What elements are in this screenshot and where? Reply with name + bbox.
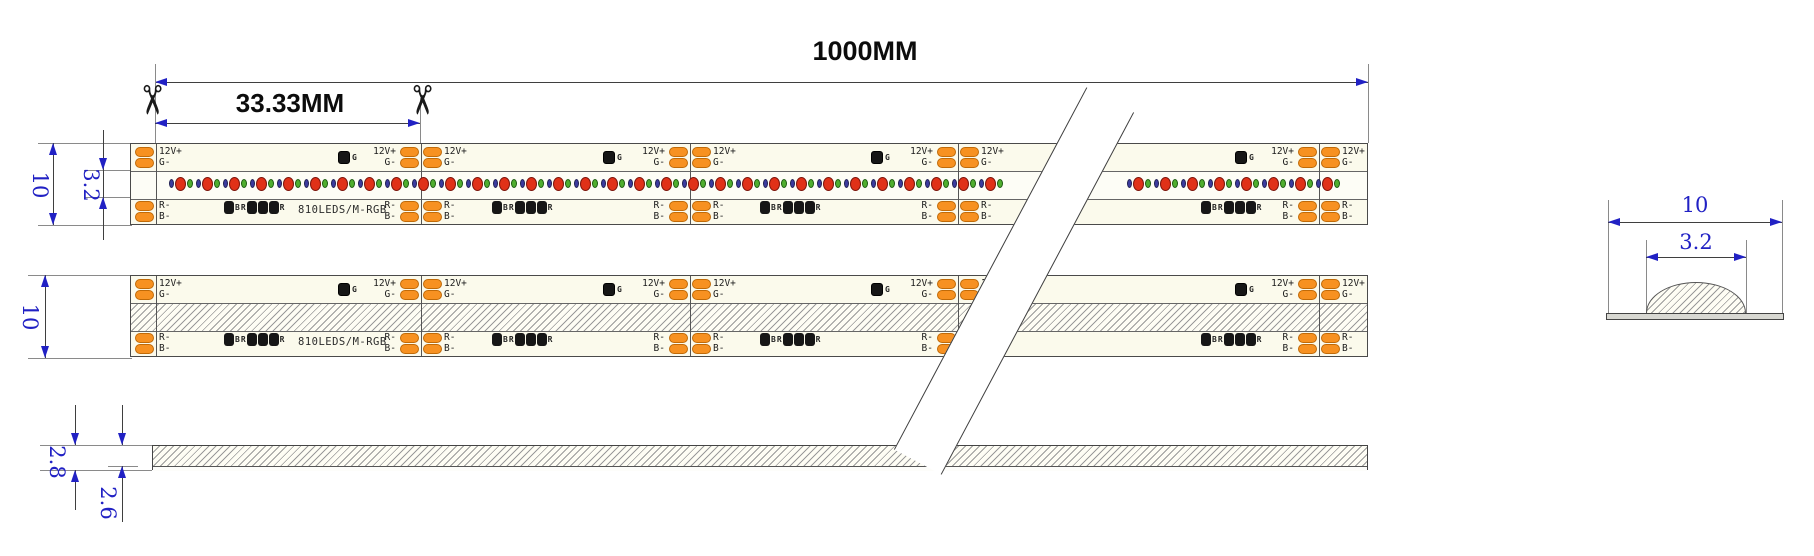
overall-length-label: 1000MM <box>790 36 940 67</box>
led-blue-die <box>817 179 822 188</box>
solder-pad <box>669 279 688 289</box>
led-red-die <box>553 177 564 191</box>
profile-height-label: 2.8 <box>45 440 69 484</box>
solder-pad <box>692 333 711 343</box>
solder-pad <box>960 158 979 168</box>
pad-label: 12V+ <box>159 146 189 157</box>
resistor-chip <box>537 333 547 346</box>
pcb-layer-profile <box>153 467 1367 471</box>
led-green-die <box>1199 179 1205 188</box>
solder-pad <box>400 279 419 289</box>
resistor-label: B <box>503 201 508 214</box>
pad-label: R- <box>159 332 189 343</box>
pad-label: 12V+ <box>713 278 741 289</box>
resistor-chip <box>794 333 804 346</box>
led-red-die <box>796 177 807 191</box>
led-chip-cluster <box>1127 176 1151 192</box>
spec-label: 810LEDS/M-RGB <box>298 204 387 216</box>
solder-pad <box>423 344 442 354</box>
smd-component <box>603 283 615 296</box>
pad-label: R- <box>981 200 1009 211</box>
side-profile-view <box>152 445 1368 470</box>
resistor-chip <box>760 201 770 214</box>
led-blue-die <box>412 179 417 188</box>
pad-label: G- <box>713 289 741 300</box>
led-chip-cluster <box>979 176 1003 192</box>
zone-divider-line <box>131 303 1367 304</box>
pad-label: G- <box>1252 157 1294 168</box>
led-blue-die <box>979 179 984 188</box>
led-blue-die <box>655 179 660 188</box>
led-blue-die <box>331 179 336 188</box>
zone-divider-line <box>131 171 1367 172</box>
solder-pad <box>669 147 688 157</box>
solder-pad <box>692 201 711 211</box>
led-red-die <box>472 177 483 191</box>
resistor-cluster: BRR <box>224 333 284 346</box>
resistor-cluster: BRR <box>760 201 820 214</box>
resistor-chip <box>515 333 525 346</box>
led-red-die <box>850 177 861 191</box>
led-blue-die <box>1208 179 1213 188</box>
resistor-chip <box>783 201 793 214</box>
solder-pad <box>135 279 154 289</box>
led-chip-cluster <box>277 176 301 192</box>
resistor-chip <box>224 201 234 214</box>
led-chip-cluster <box>385 176 409 192</box>
component-label: G <box>1249 285 1254 294</box>
led-green-die <box>565 179 571 188</box>
solder-pad <box>423 201 442 211</box>
led-green-die <box>646 179 652 188</box>
resistor-label: R <box>241 333 246 346</box>
led-red-die <box>337 177 348 191</box>
led-red-die <box>1322 177 1333 191</box>
led-red-die <box>607 177 618 191</box>
solder-pad <box>135 147 154 157</box>
led-red-die <box>1214 177 1225 191</box>
resistor-chip <box>805 333 815 346</box>
cut-unit-label: 33.33MM <box>205 88 375 119</box>
pad-label: G- <box>159 289 189 300</box>
led-blue-die <box>520 179 525 188</box>
led-chip-cluster <box>223 176 247 192</box>
pad-label: 12V+ <box>354 278 396 289</box>
resistor-label: R <box>548 201 553 214</box>
resistor-chip <box>492 333 502 346</box>
led-blue-die <box>763 179 768 188</box>
dimension-arrow <box>49 143 57 155</box>
resistor-chip <box>1224 201 1234 214</box>
resistor-chip <box>515 201 525 214</box>
pad-label: R- <box>623 200 665 211</box>
led-green-die <box>1280 179 1286 188</box>
led-red-die <box>283 177 294 191</box>
dimension-line <box>155 82 1368 83</box>
led-green-die <box>376 179 382 188</box>
led-chip-cluster <box>412 176 436 192</box>
resistor-chip <box>794 201 804 214</box>
led-red-die <box>391 177 402 191</box>
led-red-die <box>1295 177 1306 191</box>
smd-component <box>1235 283 1247 296</box>
led-red-die <box>445 177 456 191</box>
led-red-die <box>418 177 429 191</box>
resistor-label: B <box>1212 201 1217 214</box>
solder-pad <box>423 147 442 157</box>
pad-label: R- <box>623 332 665 343</box>
resistor-chip <box>760 333 770 346</box>
led-strip-covered-view: 12V+G-R-B-12V+G-R-B-12V+G-R-B-12V+G-R-B-… <box>130 275 1368 357</box>
solder-pad <box>692 158 711 168</box>
solder-pad <box>692 147 711 157</box>
led-red-die <box>958 177 969 191</box>
led-blue-die <box>1262 179 1267 188</box>
solder-pad <box>1298 344 1317 354</box>
smd-component <box>871 283 883 296</box>
cut-line <box>1319 276 1320 356</box>
led-green-die <box>322 179 328 188</box>
dimension-arrow <box>1770 218 1782 226</box>
pad-label: G- <box>159 157 189 168</box>
led-blue-die <box>250 179 255 188</box>
led-blue-die <box>1181 179 1186 188</box>
solder-pad <box>1321 290 1340 300</box>
led-green-die <box>349 179 355 188</box>
resistor-label: R <box>509 333 514 346</box>
led-blue-die <box>790 179 795 188</box>
led-red-die <box>499 177 510 191</box>
component-label: G <box>1249 153 1254 162</box>
dimension-arrow <box>1356 78 1368 86</box>
zone-divider-line <box>131 331 1367 332</box>
resistor-chip <box>537 201 547 214</box>
led-chip-cluster <box>709 176 733 192</box>
led-chip-cluster <box>466 176 490 192</box>
led-blue-die <box>304 179 309 188</box>
pad-label: G- <box>981 157 1009 168</box>
led-chip-cluster <box>844 176 868 192</box>
dimension-arrow <box>118 433 126 445</box>
led-green-die <box>214 179 220 188</box>
pad-label: R- <box>1342 200 1368 211</box>
led-red-die <box>229 177 240 191</box>
cut-line <box>421 276 422 356</box>
solder-pad <box>669 344 688 354</box>
led-chip-cluster <box>439 176 463 192</box>
led-chip-cluster <box>925 176 949 192</box>
resistor-label: B <box>503 333 508 346</box>
pad-label: B- <box>981 211 1009 222</box>
led-red-die <box>985 177 996 191</box>
resistor-label: R <box>816 201 821 214</box>
pad-label: G- <box>354 157 396 168</box>
solder-pad <box>1298 279 1317 289</box>
smd-component <box>338 283 350 296</box>
led-green-die <box>673 179 679 188</box>
extension-line <box>1368 64 1369 143</box>
pad-label: B- <box>1342 211 1368 222</box>
resistor-label: R <box>241 201 246 214</box>
led-chip-cluster <box>196 176 220 192</box>
solder-pad <box>669 212 688 222</box>
resistor-chip <box>526 201 536 214</box>
resistor-label: R <box>280 333 285 346</box>
resistor-label: R <box>1257 201 1262 214</box>
led-green-die <box>727 179 733 188</box>
pad-label: 12V+ <box>891 278 933 289</box>
led-blue-die <box>844 179 849 188</box>
led-blue-die <box>574 179 579 188</box>
solder-pad <box>423 290 442 300</box>
resistor-label: R <box>1218 333 1223 346</box>
led-chip-cluster <box>304 176 328 192</box>
component-label: G <box>885 153 890 162</box>
solder-pad <box>669 290 688 300</box>
extension-line <box>38 225 132 226</box>
pad-label: R- <box>444 200 472 211</box>
component-label: G <box>352 285 357 294</box>
led-green-die <box>268 179 274 188</box>
pad-label: G- <box>1342 157 1368 168</box>
pad-label: B- <box>159 343 189 354</box>
solder-pad <box>400 344 419 354</box>
solder-pad <box>1298 158 1317 168</box>
led-red-die <box>256 177 267 191</box>
pad-label: G- <box>623 289 665 300</box>
pad-label: B- <box>1342 343 1368 354</box>
component-label: G <box>617 285 622 294</box>
strip1-width-label: 10 <box>28 163 52 207</box>
resistor-label: R <box>1218 201 1223 214</box>
led-strip-technical-drawing: 1000MM 33.33MM ✂ ✂ 10 3.2 <box>0 0 1814 556</box>
pad-label: R- <box>159 200 189 211</box>
pad-label: G- <box>1252 289 1294 300</box>
dimension-arrow <box>1734 253 1746 261</box>
solder-pad <box>692 290 711 300</box>
pad-label: B- <box>891 211 933 222</box>
solder-pad <box>400 290 419 300</box>
dimension-arrow <box>41 346 49 358</box>
led-green-die <box>862 179 868 188</box>
led-green-die <box>1145 179 1151 188</box>
dimension-arrow <box>41 275 49 287</box>
resistor-chip <box>258 333 268 346</box>
dimension-arrow <box>1646 253 1658 261</box>
resistor-label: B <box>235 201 240 214</box>
led-blue-die <box>709 179 714 188</box>
led-red-die <box>1241 177 1252 191</box>
resistor-label: R <box>1257 333 1262 346</box>
led-chip-cluster <box>574 176 598 192</box>
led-chip-cluster <box>1316 176 1340 192</box>
component-label: G <box>617 153 622 162</box>
led-green-die <box>241 179 247 188</box>
resistor-cluster: BRR <box>492 201 552 214</box>
led-blue-die <box>628 179 633 188</box>
led-chip-cluster <box>1154 176 1178 192</box>
led-red-die <box>1160 177 1171 191</box>
pad-label: 12V+ <box>1342 146 1368 157</box>
pad-label: 12V+ <box>444 278 472 289</box>
pad-label: B- <box>159 211 189 222</box>
led-chip-cluster <box>871 176 895 192</box>
pad-label: 12V+ <box>623 146 665 157</box>
solder-pad <box>400 212 419 222</box>
led-chip-cluster <box>655 176 679 192</box>
resistor-chip <box>783 333 793 346</box>
led-blue-die <box>358 179 363 188</box>
dimension-arrow <box>71 470 79 482</box>
led-blue-die <box>277 179 282 188</box>
solder-pad <box>669 333 688 343</box>
led-blue-die <box>169 179 174 188</box>
led-red-die <box>877 177 888 191</box>
pad-label: B- <box>444 343 472 354</box>
solder-pad <box>400 147 419 157</box>
led-chip-cluster <box>1289 176 1313 192</box>
solder-pad <box>692 212 711 222</box>
led-blue-die <box>871 179 876 188</box>
solder-pad <box>960 212 979 222</box>
led-chip-cluster <box>898 176 922 192</box>
solder-pad <box>1321 201 1340 211</box>
led-chip-cluster <box>1262 176 1286 192</box>
led-chip-cluster <box>817 176 841 192</box>
resistor-chip <box>247 201 257 214</box>
led-green-die <box>1334 179 1340 188</box>
led-chip-cluster <box>547 176 571 192</box>
pad-label: B- <box>713 211 741 222</box>
scissors-icon: ✂ <box>126 77 174 123</box>
solder-pad <box>1298 147 1317 157</box>
glue-dome <box>1646 282 1746 313</box>
led-chip-cluster <box>250 176 274 192</box>
led-blue-die <box>682 179 687 188</box>
component-label: G <box>352 153 357 162</box>
solder-pad <box>960 279 979 289</box>
led-blue-die <box>385 179 390 188</box>
resistor-label: R <box>548 333 553 346</box>
resistor-chip <box>247 333 257 346</box>
solder-pad <box>135 290 154 300</box>
solder-pad <box>135 344 154 354</box>
pad-label: B- <box>623 343 665 354</box>
led-green-die <box>187 179 193 188</box>
led-blue-die <box>1289 179 1294 188</box>
led-red-die <box>1268 177 1279 191</box>
solder-pad <box>669 158 688 168</box>
resistor-label: B <box>235 333 240 346</box>
resistor-chip <box>1201 333 1211 346</box>
resistor-chip <box>805 201 815 214</box>
led-chip-cluster <box>682 176 706 192</box>
pad-label: 12V+ <box>1252 146 1294 157</box>
led-red-die <box>310 177 321 191</box>
pad-label: G- <box>891 157 933 168</box>
pad-label: 12V+ <box>623 278 665 289</box>
pcb-bar-section <box>1606 313 1784 320</box>
scissors-icon: ✂ <box>396 77 444 123</box>
led-chip-cluster <box>628 176 652 192</box>
smd-component <box>603 151 615 164</box>
solder-pad <box>937 158 956 168</box>
resistor-chip <box>1235 201 1245 214</box>
solder-pad <box>692 279 711 289</box>
led-green-die <box>943 179 949 188</box>
extension-line <box>1782 200 1783 313</box>
extension-line <box>1608 200 1609 313</box>
led-green-die <box>592 179 598 188</box>
resistor-chip <box>269 201 279 214</box>
pad-label: 12V+ <box>891 146 933 157</box>
pad-label: G- <box>444 157 472 168</box>
resistor-cluster: BRR <box>224 201 284 214</box>
glue-layer-profile <box>153 446 1367 467</box>
resistor-chip <box>492 201 502 214</box>
cut-line <box>690 276 691 356</box>
led-blue-die <box>196 179 201 188</box>
led-chip-cluster <box>1235 176 1259 192</box>
led-green-die <box>484 179 490 188</box>
dimension-arrow <box>71 433 79 445</box>
solder-pad <box>937 147 956 157</box>
led-red-die <box>931 177 942 191</box>
led-blue-die <box>601 179 606 188</box>
smd-component <box>1235 151 1247 164</box>
led-red-die <box>175 177 186 191</box>
led-green-die <box>781 179 787 188</box>
solder-pad <box>400 201 419 211</box>
solder-pad <box>1321 158 1340 168</box>
led-green-die <box>754 179 760 188</box>
led-red-die <box>580 177 591 191</box>
solder-pad <box>1298 333 1317 343</box>
pad-label: G- <box>891 289 933 300</box>
solder-pad <box>135 333 154 343</box>
led-band-width-label: 3.2 <box>79 163 103 207</box>
resistor-chip <box>224 333 234 346</box>
resistor-chip <box>1246 333 1256 346</box>
led-blue-die <box>223 179 228 188</box>
extension-line <box>28 358 132 359</box>
led-blue-die <box>736 179 741 188</box>
resistor-cluster: BRR <box>1201 333 1261 346</box>
section-dome-label: 3.2 <box>1666 230 1726 254</box>
pad-label: G- <box>623 157 665 168</box>
led-blue-die <box>925 179 930 188</box>
pad-label: R- <box>1342 332 1368 343</box>
pad-label: G- <box>1342 289 1368 300</box>
solder-pad <box>423 333 442 343</box>
led-chip-cluster <box>520 176 544 192</box>
solder-pad <box>937 212 956 222</box>
led-green-die <box>295 179 301 188</box>
led-green-die <box>889 179 895 188</box>
pad-label: 12V+ <box>713 146 741 157</box>
resistor-label: R <box>777 201 782 214</box>
led-blue-die <box>898 179 903 188</box>
led-chip-cluster <box>790 176 814 192</box>
solder-pad <box>1321 279 1340 289</box>
led-green-die <box>1226 179 1232 188</box>
spec-label: 810LEDS/M-RGB <box>298 336 387 348</box>
dimension-arrow <box>49 213 57 225</box>
led-green-die <box>1307 179 1313 188</box>
pad-label: 12V+ <box>981 146 1009 157</box>
led-chip-cluster <box>169 176 193 192</box>
pad-label: G- <box>444 289 472 300</box>
